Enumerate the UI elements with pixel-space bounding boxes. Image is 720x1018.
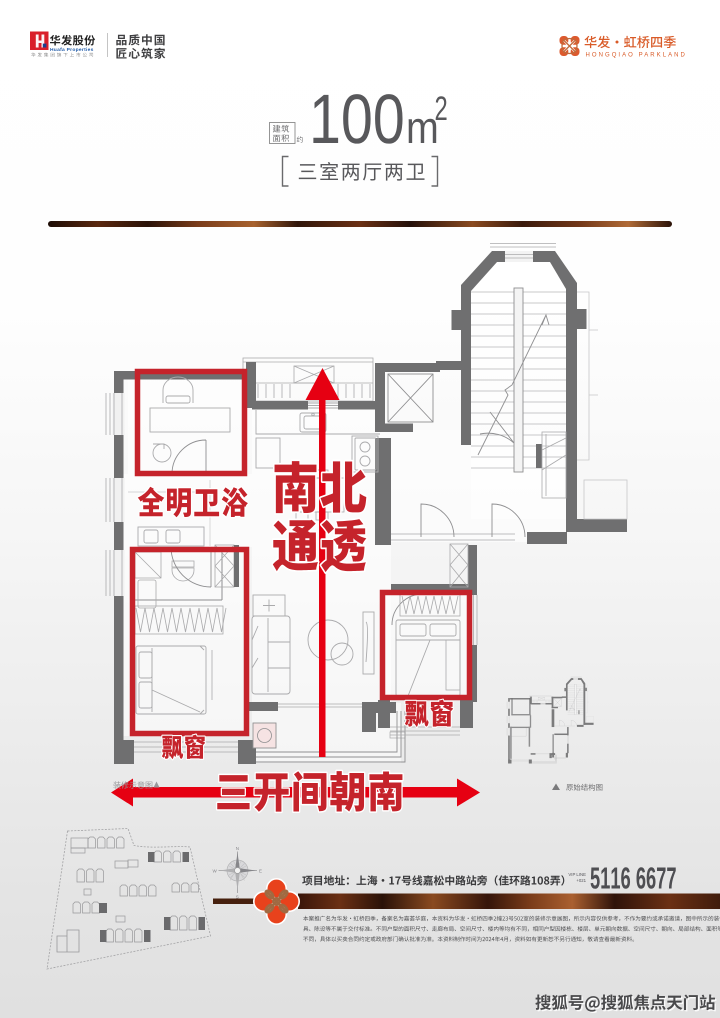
svg-text:E: E [259,869,262,874]
svg-text:+021: +021 [576,878,586,883]
svg-text:N: N [236,846,239,851]
svg-text:Huafa Properties: Huafa Properties [50,47,94,53]
svg-text:W: W [213,869,218,874]
svg-text:HONGQIAO PARKLAND: HONGQIAO PARKLAND [586,53,687,59]
svg-text:VIP LINE: VIP LINE [568,872,586,877]
